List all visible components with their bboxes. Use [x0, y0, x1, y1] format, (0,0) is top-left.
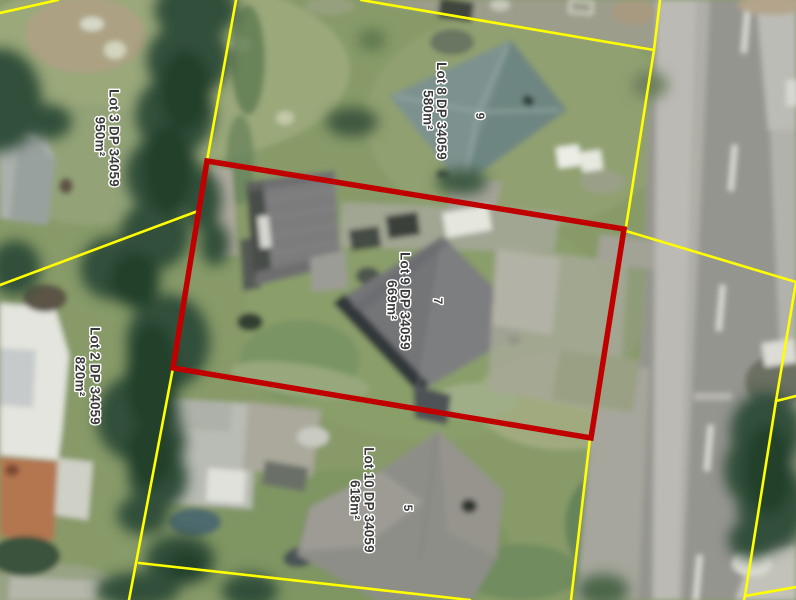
svg-text:820m²: 820m² — [73, 357, 88, 397]
svg-text:5: 5 — [401, 505, 415, 512]
svg-text:950m²: 950m² — [93, 117, 108, 157]
svg-text:669m²: 669m² — [385, 280, 400, 320]
svg-text:9: 9 — [473, 113, 487, 120]
svg-text:618m²: 618m² — [348, 480, 363, 520]
svg-text:Lot 10 DP 34059: Lot 10 DP 34059 — [362, 447, 377, 552]
svg-text:Lot 2 DP 34059: Lot 2 DP 34059 — [88, 327, 103, 425]
svg-text:580m²: 580m² — [421, 90, 436, 130]
svg-text:7: 7 — [431, 298, 445, 305]
svg-text:Lot 3 DP 34059: Lot 3 DP 34059 — [107, 89, 122, 187]
